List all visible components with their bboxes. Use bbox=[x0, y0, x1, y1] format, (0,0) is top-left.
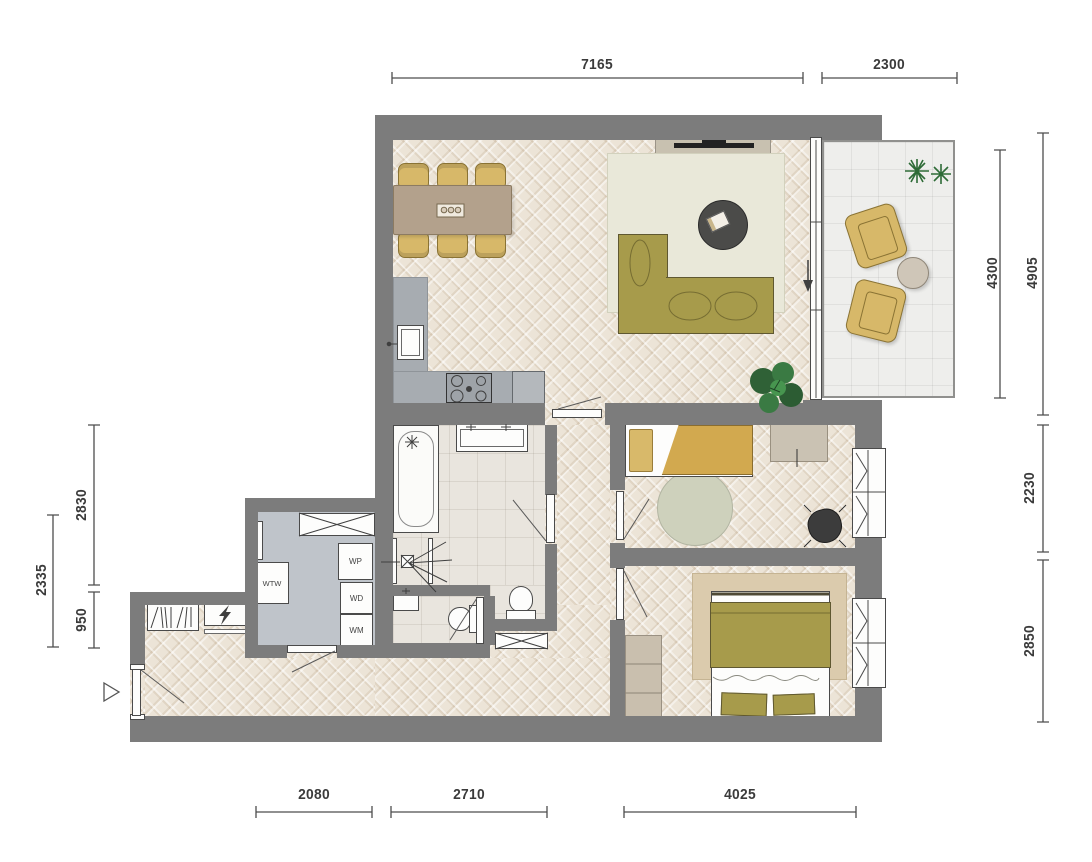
wtw-unit: WTW bbox=[255, 562, 289, 604]
tv-soundbar bbox=[702, 140, 726, 144]
wd-label: WD bbox=[341, 583, 372, 613]
wall-utility-south-b bbox=[337, 645, 375, 658]
dim-right-2230: 2230 bbox=[1021, 460, 1037, 515]
bedroom1-door-leaf bbox=[616, 491, 624, 540]
dim-left-2830: 2830 bbox=[73, 477, 89, 532]
kitchen-cooktop bbox=[446, 373, 492, 403]
wall-right-3 bbox=[855, 687, 882, 742]
dim-bottom-2080: 2080 bbox=[286, 786, 341, 802]
wall-bottom bbox=[130, 716, 882, 742]
bathtub-basin bbox=[398, 431, 434, 527]
wc-toilet-bowl bbox=[448, 607, 471, 631]
wall-step2 bbox=[130, 592, 258, 605]
wall-wc-east bbox=[484, 596, 495, 645]
wc-door-leaf bbox=[476, 597, 484, 644]
utility-door-leaf bbox=[287, 645, 337, 653]
wall-bedrooms-west-c bbox=[610, 620, 625, 718]
bedroom2-pillow bbox=[773, 693, 816, 715]
wall-wc-north bbox=[392, 585, 490, 596]
bedroom1-window bbox=[852, 448, 886, 538]
wall-utility-left bbox=[245, 498, 258, 658]
wall-right-2 bbox=[855, 537, 882, 600]
bedroom2-window bbox=[852, 598, 886, 688]
shower-drain bbox=[401, 555, 414, 568]
wp-label: WP bbox=[339, 544, 372, 579]
entrance-triangle-icon bbox=[104, 683, 119, 701]
sofa-seat bbox=[666, 277, 774, 334]
wall-bath-south bbox=[495, 619, 557, 631]
dim-top-7165: 7165 bbox=[569, 56, 624, 72]
wall-bath-east-b bbox=[545, 544, 557, 631]
wp-unit: WP bbox=[338, 543, 373, 580]
dim-left-950: 950 bbox=[73, 592, 89, 647]
utility-closet bbox=[299, 513, 375, 536]
hall-door-leaf bbox=[552, 409, 602, 418]
wm-unit: WM bbox=[340, 614, 373, 647]
dining-chair bbox=[398, 231, 429, 258]
bedroom1-pillow bbox=[629, 429, 653, 472]
meter-cupboard bbox=[204, 604, 249, 626]
wall-wc-south bbox=[375, 643, 490, 658]
floor-hall-under-bath bbox=[375, 658, 610, 718]
balcony-side-table bbox=[897, 257, 929, 289]
dining-chair bbox=[437, 231, 468, 258]
bedroom1-desk bbox=[770, 423, 828, 462]
sofa-chaise bbox=[618, 234, 668, 334]
wall-bedroom1-north bbox=[605, 403, 855, 425]
bedroom2-door-leaf bbox=[616, 568, 624, 620]
wall-bath-east-a bbox=[545, 425, 557, 495]
wall-between-bedrooms bbox=[610, 548, 855, 566]
dim-left-2335: 2335 bbox=[33, 552, 49, 607]
dining-table bbox=[393, 185, 512, 235]
wall-step1 bbox=[245, 498, 393, 512]
toilet-bowl bbox=[509, 586, 533, 612]
wall-kitchen-south bbox=[393, 403, 545, 425]
entrance-door-leaf bbox=[132, 669, 141, 716]
floor-plan: WTW WP WD WM bbox=[0, 0, 1092, 862]
bathroom-door-leaf bbox=[546, 494, 555, 543]
wm-label: WM bbox=[341, 615, 372, 646]
wtw-label: WTW bbox=[256, 563, 288, 603]
balcony-glass-wall bbox=[810, 137, 822, 400]
wall-bedrooms-west-a bbox=[610, 425, 625, 490]
dining-chair bbox=[475, 231, 506, 258]
wall-left-upper bbox=[375, 115, 393, 505]
dim-bottom-2710: 2710 bbox=[441, 786, 496, 802]
hall-closet bbox=[495, 633, 548, 649]
shower-glass-right bbox=[428, 538, 433, 584]
floor-balcony bbox=[822, 140, 955, 398]
wall-top bbox=[375, 115, 882, 140]
wall-left-inner bbox=[375, 505, 393, 658]
wd-unit: WD bbox=[340, 582, 373, 614]
dim-bottom-4025: 4025 bbox=[712, 786, 767, 802]
bedroom2-duvet bbox=[710, 602, 831, 668]
wall-entrance bbox=[130, 592, 145, 670]
kitchen-sink-basin bbox=[401, 329, 420, 356]
wall-utility-south-a bbox=[258, 645, 287, 658]
coat-rack bbox=[147, 604, 199, 631]
bedroom1-rug bbox=[657, 470, 733, 546]
meter-shelf bbox=[204, 629, 249, 634]
dim-top-2300: 2300 bbox=[861, 56, 916, 72]
dim-right-4300: 4300 bbox=[984, 245, 1000, 300]
dim-right-2850: 2850 bbox=[1021, 613, 1037, 668]
kitchen-tall-cabinet bbox=[512, 371, 545, 405]
bedroom2-dresser bbox=[625, 635, 662, 722]
bedroom2-pillow bbox=[721, 692, 768, 717]
dim-right-4905: 4905 bbox=[1024, 245, 1040, 300]
vanity-basin bbox=[460, 429, 524, 447]
